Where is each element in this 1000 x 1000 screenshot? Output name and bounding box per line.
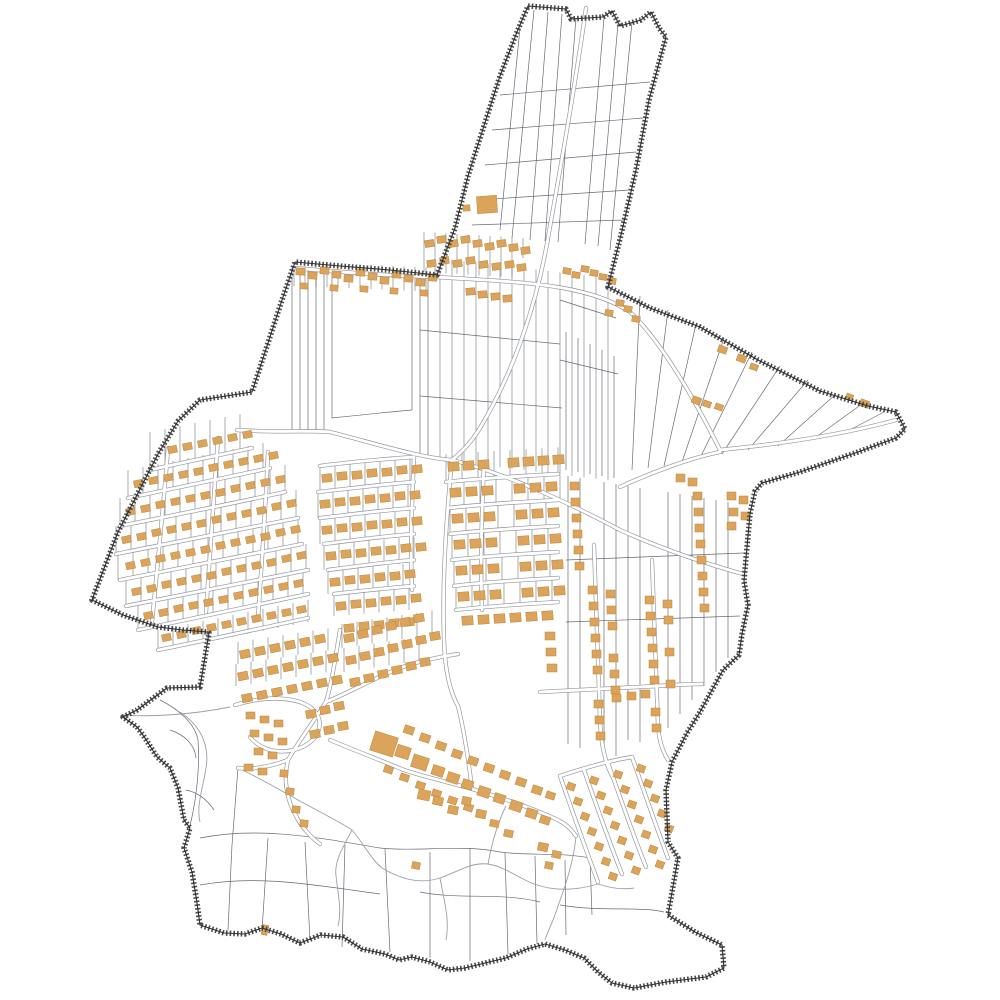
building bbox=[531, 785, 543, 796]
building bbox=[411, 861, 420, 870]
building bbox=[437, 235, 447, 243]
building bbox=[588, 586, 597, 594]
building bbox=[663, 600, 672, 608]
building bbox=[278, 582, 288, 591]
building bbox=[280, 770, 289, 778]
stream-path bbox=[598, 884, 634, 889]
building bbox=[335, 497, 346, 506]
building bbox=[563, 267, 572, 274]
building bbox=[296, 268, 305, 275]
road bbox=[448, 500, 558, 508]
building bbox=[200, 545, 210, 554]
building bbox=[281, 608, 291, 617]
building bbox=[665, 648, 674, 656]
building bbox=[382, 467, 393, 476]
building bbox=[514, 484, 526, 494]
building bbox=[320, 499, 331, 508]
building bbox=[197, 439, 207, 448]
building bbox=[697, 556, 706, 564]
road bbox=[549, 8, 586, 232]
building bbox=[570, 482, 579, 490]
building bbox=[419, 733, 431, 744]
building bbox=[522, 588, 534, 598]
building bbox=[233, 591, 243, 600]
building bbox=[351, 599, 362, 608]
building bbox=[211, 515, 221, 524]
building bbox=[592, 650, 601, 658]
building bbox=[143, 611, 153, 620]
building bbox=[377, 669, 388, 679]
building bbox=[327, 653, 338, 663]
building bbox=[371, 625, 382, 635]
parcel-line bbox=[560, 905, 664, 912]
map-canvas bbox=[0, 0, 1000, 1000]
building bbox=[386, 545, 397, 554]
building bbox=[468, 513, 480, 523]
building bbox=[269, 643, 280, 653]
building bbox=[461, 235, 471, 243]
building bbox=[609, 654, 618, 662]
building bbox=[645, 596, 654, 604]
building bbox=[256, 506, 266, 515]
building bbox=[650, 676, 659, 684]
building bbox=[267, 665, 278, 675]
building bbox=[215, 541, 225, 550]
building bbox=[499, 770, 511, 781]
building bbox=[360, 286, 368, 292]
building bbox=[503, 829, 513, 838]
building bbox=[610, 670, 619, 678]
building bbox=[399, 617, 410, 627]
parcel-line bbox=[565, 860, 566, 935]
road bbox=[540, 684, 702, 692]
building bbox=[649, 660, 658, 668]
building bbox=[331, 675, 342, 685]
road-casing bbox=[326, 654, 458, 702]
building bbox=[412, 516, 423, 525]
building bbox=[286, 788, 295, 796]
building bbox=[482, 486, 494, 496]
building bbox=[320, 267, 329, 274]
building bbox=[281, 554, 291, 563]
building bbox=[530, 483, 542, 493]
building bbox=[292, 806, 301, 814]
building bbox=[573, 530, 582, 538]
building bbox=[263, 585, 273, 594]
building bbox=[403, 725, 415, 736]
building bbox=[463, 205, 470, 211]
building bbox=[479, 260, 489, 268]
building bbox=[601, 857, 611, 866]
building bbox=[435, 741, 447, 752]
building bbox=[397, 465, 408, 474]
building bbox=[739, 496, 748, 504]
building bbox=[309, 729, 320, 739]
building bbox=[140, 558, 150, 567]
building bbox=[608, 622, 617, 630]
building bbox=[359, 651, 370, 661]
road bbox=[320, 508, 414, 518]
building bbox=[161, 580, 171, 589]
building bbox=[251, 561, 261, 570]
building bbox=[275, 475, 285, 484]
building bbox=[176, 630, 186, 639]
building bbox=[193, 467, 203, 476]
building bbox=[607, 606, 616, 614]
stream-path bbox=[440, 878, 447, 940]
building bbox=[212, 436, 222, 445]
building bbox=[466, 256, 476, 264]
building bbox=[308, 272, 317, 279]
building bbox=[208, 463, 218, 472]
building bbox=[699, 588, 708, 596]
building bbox=[599, 273, 608, 280]
building bbox=[390, 288, 398, 294]
building bbox=[631, 866, 641, 875]
building bbox=[146, 584, 156, 593]
building bbox=[470, 539, 482, 549]
parcel-line bbox=[500, 852, 590, 858]
building bbox=[545, 632, 555, 640]
building bbox=[493, 793, 506, 805]
building bbox=[282, 662, 293, 672]
building bbox=[350, 496, 361, 505]
building bbox=[399, 773, 410, 782]
building bbox=[608, 872, 618, 881]
building bbox=[727, 492, 736, 500]
building bbox=[299, 637, 310, 647]
building bbox=[359, 621, 370, 630]
building bbox=[206, 623, 216, 632]
building bbox=[523, 457, 535, 467]
building bbox=[517, 263, 527, 271]
building bbox=[413, 613, 424, 623]
building bbox=[258, 768, 267, 775]
building bbox=[503, 295, 513, 303]
building bbox=[284, 640, 295, 650]
building bbox=[301, 681, 312, 691]
building bbox=[548, 508, 560, 518]
building bbox=[330, 285, 338, 291]
building bbox=[590, 618, 599, 626]
building bbox=[136, 532, 146, 541]
building bbox=[456, 566, 468, 576]
building bbox=[363, 673, 374, 683]
building bbox=[477, 785, 492, 798]
building bbox=[566, 782, 576, 791]
building bbox=[394, 744, 411, 760]
building bbox=[260, 716, 269, 723]
building bbox=[380, 493, 391, 502]
building bbox=[492, 262, 502, 270]
building bbox=[472, 565, 484, 575]
building bbox=[215, 488, 225, 497]
building bbox=[605, 309, 614, 316]
parcel-layer bbox=[116, 10, 884, 961]
building bbox=[268, 451, 278, 460]
building bbox=[571, 498, 580, 506]
building bbox=[520, 562, 532, 572]
building bbox=[227, 433, 237, 442]
building bbox=[176, 577, 186, 586]
building bbox=[332, 271, 341, 278]
building bbox=[218, 595, 228, 604]
building bbox=[591, 634, 600, 642]
building bbox=[271, 502, 281, 511]
building bbox=[696, 540, 705, 548]
building bbox=[316, 678, 327, 688]
building bbox=[196, 519, 206, 528]
building bbox=[166, 525, 176, 534]
road bbox=[320, 457, 414, 466]
building bbox=[373, 647, 384, 657]
building bbox=[401, 543, 412, 552]
building bbox=[140, 504, 150, 513]
building bbox=[476, 195, 497, 213]
building bbox=[695, 524, 704, 532]
building bbox=[161, 633, 171, 642]
building bbox=[185, 494, 195, 503]
building bbox=[371, 546, 382, 555]
building bbox=[488, 564, 500, 574]
building bbox=[714, 403, 724, 411]
building bbox=[178, 470, 188, 479]
building bbox=[290, 525, 300, 534]
building bbox=[617, 836, 627, 845]
building bbox=[170, 497, 180, 506]
building bbox=[542, 611, 554, 621]
building bbox=[404, 275, 413, 282]
building bbox=[589, 602, 598, 610]
building bbox=[478, 291, 488, 299]
building bbox=[521, 246, 531, 254]
building bbox=[375, 572, 386, 581]
building bbox=[581, 265, 590, 272]
building bbox=[546, 648, 556, 656]
building bbox=[200, 491, 210, 500]
building bbox=[646, 612, 655, 620]
building bbox=[466, 487, 478, 497]
building bbox=[297, 659, 308, 669]
building bbox=[278, 738, 287, 745]
building bbox=[627, 800, 637, 809]
building bbox=[749, 363, 759, 371]
building bbox=[505, 260, 515, 268]
building bbox=[650, 794, 660, 803]
building bbox=[395, 491, 406, 500]
parcel-line bbox=[170, 730, 196, 758]
road bbox=[458, 706, 472, 789]
building bbox=[344, 623, 355, 632]
building bbox=[491, 293, 501, 301]
building bbox=[691, 396, 702, 406]
building bbox=[274, 720, 283, 727]
building bbox=[587, 827, 597, 836]
building bbox=[411, 593, 422, 602]
building bbox=[593, 666, 602, 674]
building bbox=[652, 724, 661, 732]
building bbox=[451, 749, 463, 760]
building bbox=[191, 574, 201, 583]
building bbox=[237, 671, 248, 681]
building bbox=[352, 522, 363, 531]
parcel-line bbox=[610, 22, 632, 250]
building bbox=[322, 473, 333, 482]
building bbox=[727, 522, 736, 530]
parcel-line bbox=[535, 856, 537, 944]
building bbox=[484, 512, 496, 522]
building bbox=[151, 528, 161, 537]
building bbox=[236, 564, 246, 573]
parcel-line bbox=[560, 360, 618, 374]
building bbox=[286, 499, 296, 508]
building bbox=[248, 588, 258, 597]
building bbox=[345, 655, 356, 665]
building bbox=[553, 455, 565, 465]
building bbox=[344, 275, 353, 282]
road bbox=[318, 482, 414, 492]
building bbox=[125, 561, 135, 570]
building bbox=[242, 430, 252, 439]
building bbox=[296, 605, 306, 614]
building bbox=[516, 510, 528, 520]
building bbox=[239, 649, 250, 659]
building bbox=[447, 805, 458, 815]
building bbox=[534, 535, 546, 545]
building bbox=[544, 861, 553, 870]
building bbox=[526, 612, 538, 622]
building bbox=[537, 842, 548, 852]
building bbox=[241, 509, 251, 518]
building bbox=[271, 687, 282, 697]
building bbox=[450, 488, 462, 498]
building bbox=[254, 646, 265, 656]
building bbox=[483, 763, 495, 774]
parcel-line bbox=[200, 881, 380, 894]
building bbox=[206, 571, 216, 580]
building bbox=[415, 781, 426, 790]
building bbox=[221, 620, 231, 629]
building bbox=[508, 458, 520, 468]
building bbox=[572, 514, 581, 522]
building bbox=[509, 243, 519, 251]
building bbox=[447, 796, 458, 805]
building bbox=[252, 668, 263, 678]
parcel-line bbox=[505, 853, 508, 954]
road-casing bbox=[720, 420, 896, 450]
building bbox=[427, 259, 437, 267]
building bbox=[245, 481, 255, 490]
building bbox=[155, 554, 165, 563]
building bbox=[497, 239, 507, 247]
building bbox=[574, 546, 583, 554]
building bbox=[627, 692, 636, 700]
building bbox=[676, 474, 685, 482]
building bbox=[236, 617, 246, 626]
building bbox=[486, 538, 498, 548]
building bbox=[148, 476, 158, 485]
road bbox=[456, 602, 558, 610]
building bbox=[381, 596, 392, 605]
building bbox=[429, 631, 440, 641]
parcel-line bbox=[420, 892, 540, 902]
building bbox=[518, 536, 530, 546]
building bbox=[693, 492, 702, 500]
building bbox=[416, 542, 427, 551]
building bbox=[300, 283, 308, 289]
building bbox=[431, 764, 446, 777]
building bbox=[155, 500, 165, 509]
building bbox=[412, 464, 423, 473]
building bbox=[485, 242, 495, 250]
building bbox=[163, 473, 173, 482]
building bbox=[369, 731, 398, 757]
building bbox=[333, 701, 344, 711]
building bbox=[580, 812, 590, 821]
building bbox=[245, 535, 255, 544]
building bbox=[432, 796, 443, 806]
building bbox=[590, 269, 599, 276]
building bbox=[595, 716, 604, 724]
building bbox=[700, 604, 709, 612]
building bbox=[357, 629, 368, 639]
building bbox=[611, 686, 620, 694]
building bbox=[490, 590, 502, 600]
building bbox=[641, 690, 650, 698]
building bbox=[365, 494, 376, 503]
building bbox=[552, 560, 564, 570]
building bbox=[474, 591, 486, 601]
building bbox=[648, 845, 658, 854]
building bbox=[343, 633, 354, 643]
building bbox=[729, 508, 738, 516]
building bbox=[466, 288, 476, 296]
building bbox=[453, 259, 463, 267]
building bbox=[391, 665, 402, 675]
building bbox=[260, 532, 270, 541]
building bbox=[336, 601, 347, 610]
parcel-line bbox=[190, 740, 199, 826]
building bbox=[494, 614, 506, 624]
parcel-line bbox=[722, 366, 780, 454]
building bbox=[131, 587, 141, 596]
building bbox=[596, 732, 605, 740]
building bbox=[632, 315, 641, 322]
building bbox=[405, 661, 416, 671]
building bbox=[300, 820, 309, 828]
building bbox=[536, 561, 548, 571]
road-casing-layer bbox=[116, 8, 896, 882]
building bbox=[478, 615, 490, 625]
stream-path bbox=[238, 768, 352, 830]
building bbox=[337, 721, 348, 731]
building bbox=[405, 569, 416, 578]
building bbox=[323, 725, 334, 735]
building bbox=[173, 604, 183, 613]
building bbox=[230, 538, 240, 547]
building bbox=[396, 595, 407, 604]
building bbox=[546, 482, 558, 492]
building bbox=[538, 587, 550, 597]
building bbox=[545, 791, 556, 800]
building bbox=[356, 548, 367, 557]
building bbox=[337, 471, 348, 480]
building bbox=[181, 522, 191, 531]
building bbox=[286, 684, 297, 694]
building bbox=[410, 490, 421, 499]
building bbox=[575, 562, 584, 570]
building bbox=[341, 549, 352, 558]
